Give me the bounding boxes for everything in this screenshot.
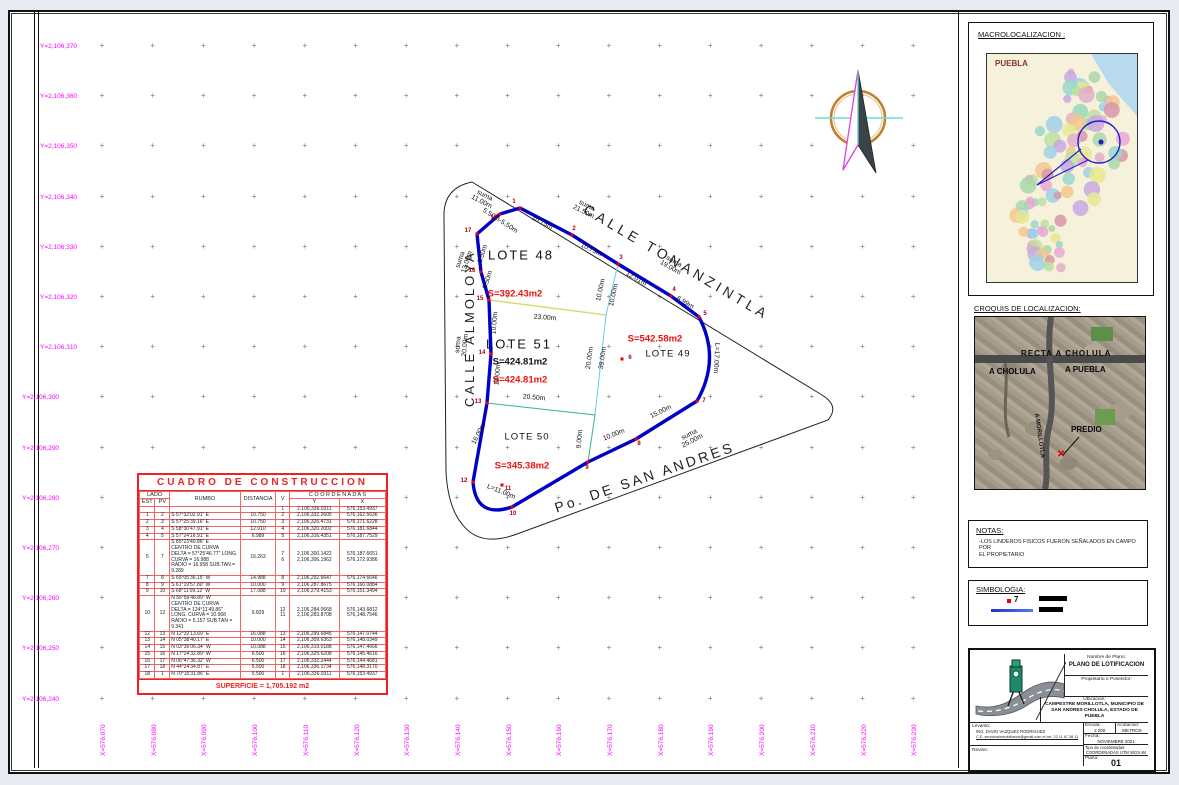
grid-cross: + — [657, 593, 662, 602]
grid-cross: + — [201, 443, 206, 452]
construction-row: 1012N 56°59'48.89" W CENTRO DE CURVA DEL… — [140, 596, 386, 632]
division-line-yellow — [489, 300, 606, 315]
grid-cross: + — [860, 41, 865, 50]
grid-cross: + — [911, 342, 916, 351]
croquis-label-apuebla: A PUEBLA — [1065, 365, 1106, 374]
grid-cross: + — [607, 593, 612, 602]
grid-cross: + — [556, 593, 561, 602]
grid-cross: + — [911, 543, 916, 552]
grid-cross: + — [404, 141, 409, 150]
municipality-blob — [1054, 247, 1065, 258]
x-axis-label: X=576,130 — [404, 724, 411, 756]
grid-cross: + — [911, 242, 916, 251]
grid-cross: + — [911, 643, 916, 652]
grid-cross: + — [302, 392, 307, 401]
grid-cross: + — [353, 342, 358, 351]
grid-cross: + — [860, 593, 865, 602]
grid-cross: + — [404, 242, 409, 251]
municipality-blob — [1054, 215, 1066, 227]
grid-cross: + — [353, 292, 358, 301]
municipality-blob — [1061, 186, 1073, 198]
predio-leader-line — [1063, 437, 1079, 455]
grid-cross: + — [100, 141, 105, 150]
grid-cross: + — [860, 392, 865, 401]
grid-cross: + — [201, 91, 206, 100]
x-axis-label: X=576,080 — [151, 724, 158, 756]
grid-cross: + — [505, 41, 510, 50]
right-panel-rule — [958, 12, 961, 768]
col-pv: PV — [155, 499, 170, 506]
col-coordenadas: C O O R D E N A D A S — [290, 492, 386, 499]
municipality-blob — [1063, 95, 1071, 103]
x-axis-label: X=576,170 — [607, 724, 614, 756]
col-rumbo: RUMBO — [170, 492, 240, 507]
vertex-number-8: 8 — [637, 441, 640, 447]
nombre-label: Nombre de Plano: — [1065, 655, 1148, 660]
grid-cross: + — [353, 242, 358, 251]
grid-cross: + — [455, 41, 460, 50]
vertex-number-7: 7 — [702, 398, 705, 404]
vertex-number-9: 9 — [585, 465, 588, 471]
grid-cross: + — [150, 242, 155, 251]
grid-cross: + — [860, 643, 865, 652]
construction-table-title: CUADRO DE CONSTRUCCION — [139, 475, 386, 491]
legend-boundary-text-redacted — [1039, 607, 1063, 612]
croquis-park-2 — [1095, 409, 1115, 425]
propietario-label: Propietario o Poseedor: — [1065, 677, 1148, 682]
grid-cross: + — [505, 694, 510, 703]
grid-cross: + — [252, 91, 257, 100]
grid-cross: + — [607, 141, 612, 150]
vertex-marker-15 — [488, 299, 491, 302]
grid-cross: + — [759, 593, 764, 602]
construction-row: 57S 85°23'40.86" E CENTRO DE CURVA DELTA… — [140, 540, 386, 576]
grid-cross: + — [809, 41, 814, 50]
vertex-number-11: 11 — [505, 486, 511, 492]
municipality-blob — [1054, 191, 1062, 199]
x-axis-label: X=576,140 — [455, 724, 462, 756]
vertex-marker-11 — [501, 484, 504, 487]
legend-vertex-text-redacted — [1039, 596, 1067, 601]
grid-cross: + — [455, 141, 460, 150]
grid-cross: + — [708, 643, 713, 652]
grid-cross: + — [708, 41, 713, 50]
grid-cross: + — [150, 342, 155, 351]
grid-cross: + — [759, 141, 764, 150]
grid-cross: + — [150, 91, 155, 100]
municipality-blob — [1044, 146, 1057, 159]
lot-label: S=542.58m2 — [628, 334, 683, 345]
vertex-marker-12 — [472, 481, 475, 484]
grid-cross: + — [809, 593, 814, 602]
legend-vertex-marker — [1007, 599, 1011, 603]
x-axis-label: X=576,100 — [252, 724, 259, 756]
grid-cross: + — [404, 694, 409, 703]
vertex-marker-18 — [499, 213, 502, 216]
vertex-marker-6 — [621, 358, 624, 361]
macrolocalizacion-box: MACROLOCALIZACION : PUEBLA — [968, 22, 1154, 296]
logo-station-lens — [1013, 671, 1019, 677]
grid-cross: + — [252, 141, 257, 150]
vertex-marker-17 — [476, 233, 479, 236]
notas-line-1: -LOS LINDEROS FISICOS FUERON SEÑALADOS E… — [979, 539, 1147, 551]
vertex-marker-4 — [670, 295, 673, 298]
vertex-number-5: 5 — [703, 311, 706, 317]
propietario-cell: Propietario o Poseedor: — [1064, 676, 1148, 697]
vertex-number-1: 1 — [512, 199, 515, 205]
y-axis-label: Y=2,106,330 — [40, 244, 77, 251]
grid-cross: + — [404, 41, 409, 50]
grid-cross: + — [708, 91, 713, 100]
grid-cross: + — [556, 141, 561, 150]
grid-cross: + — [353, 192, 358, 201]
municipality-blob — [1046, 116, 1063, 133]
grid-cross: + — [100, 443, 105, 452]
construction-row: 181N 70°15'31.86" E5.50012,106,336.03115… — [140, 672, 386, 679]
municipality-blob — [1060, 159, 1074, 173]
lot-label: LOTE 48 — [488, 248, 554, 263]
notas-line-2: EL PROPIETARIO — [979, 552, 1024, 558]
municipality-blob — [1104, 102, 1120, 118]
x-axis-label: X=576,120 — [354, 724, 361, 756]
croquis-road-vertical — [1045, 317, 1052, 489]
grid-cross: + — [911, 292, 916, 301]
grid-cross: + — [100, 643, 105, 652]
grid-cross: + — [404, 493, 409, 502]
croquis-section: CROQUIS DE LOCALIZACION: RECTA A CHOLULA… — [968, 300, 1152, 492]
plan-name: PLANO DE LOTIFICACION — [1065, 662, 1148, 668]
grid-cross: + — [404, 443, 409, 452]
notas-title: NOTAS: — [976, 526, 1003, 535]
municipality-blob — [1020, 177, 1037, 194]
vertex-marker-14 — [490, 353, 493, 356]
y-axis-label: Y=2,106,350 — [40, 143, 77, 150]
grid-cross: + — [100, 292, 105, 301]
grid-cross: + — [100, 694, 105, 703]
municipality-blob — [1095, 152, 1105, 162]
grid-cross: + — [100, 593, 105, 602]
grid-cross: + — [404, 292, 409, 301]
grid-cross: + — [657, 643, 662, 652]
grid-cross: + — [302, 342, 307, 351]
grid-cross: + — [302, 141, 307, 150]
vertex-marker-2 — [571, 234, 574, 237]
municipality-blob — [1030, 220, 1038, 228]
grid-cross: + — [911, 41, 916, 50]
grid-cross: + — [150, 443, 155, 452]
grid-cross: + — [353, 443, 358, 452]
grid-cross: + — [150, 41, 155, 50]
municipality-blob — [1029, 254, 1046, 271]
grid-cross: + — [759, 41, 764, 50]
municipality-blob — [1078, 87, 1094, 103]
vertex-number-16: 16 — [469, 268, 476, 274]
acotacion-cell: Acotacion: METROS — [1116, 722, 1148, 734]
vertex-marker-1 — [519, 207, 522, 210]
grid-cross: + — [708, 694, 713, 703]
grid-cross: + — [150, 292, 155, 301]
grid-cross: + — [100, 493, 105, 502]
grid-cross: + — [302, 443, 307, 452]
grid-cross: + — [252, 443, 257, 452]
vertex-marker-9 — [587, 461, 590, 464]
municipality-blob — [1042, 169, 1054, 181]
municipality-blob — [1056, 263, 1065, 272]
y-axis-label: Y=2,106,270 — [22, 545, 59, 552]
grid-cross: + — [505, 141, 510, 150]
grid-cross: + — [100, 543, 105, 552]
grid-cross: + — [708, 141, 713, 150]
vertex-marker-7 — [696, 400, 699, 403]
grid-cross: + — [860, 342, 865, 351]
dimension-label: 23.00m — [533, 314, 556, 323]
vertex-number-13: 13 — [475, 399, 482, 405]
y-axis-label: Y=2,106,340 — [40, 194, 77, 201]
municipality-blob — [1073, 200, 1089, 216]
ubicacion-cell: Ubicacion: CAMPESTRE MORILLOTLA, MUNICIP… — [1040, 697, 1148, 722]
sheet: ++++++++++++++++++++++++++++++++++++++++… — [8, 10, 1170, 774]
municipality-blob — [1035, 126, 1045, 136]
acotacion-value: METROS — [1116, 728, 1148, 733]
grid-cross: + — [150, 392, 155, 401]
escala-cell: Escala: 1:200 — [1084, 722, 1116, 734]
grid-cross: + — [302, 41, 307, 50]
municipality-blob — [1048, 225, 1055, 232]
vertex-number-14: 14 — [479, 350, 486, 356]
y-axis-label: Y=2,106,320 — [40, 294, 77, 301]
grid-cross: + — [911, 493, 916, 502]
grid-cross: + — [252, 342, 257, 351]
grid-cross: + — [302, 242, 307, 251]
grid-cross: + — [404, 392, 409, 401]
grid-cross: + — [860, 694, 865, 703]
grid-cross: + — [353, 392, 358, 401]
lot-label: S=345.38m2 — [495, 461, 550, 472]
vertex-marker-10 — [511, 506, 514, 509]
grid-cross: + — [759, 643, 764, 652]
grid-cross: + — [353, 141, 358, 150]
municipality-blob — [1092, 132, 1106, 146]
grid-cross: + — [759, 91, 764, 100]
grid-cross: + — [809, 694, 814, 703]
levanto-cell: Levanto: ING. DAVID VAZQUEZ RODRIGUEZ C.… — [970, 722, 1084, 746]
grid-cross: + — [404, 643, 409, 652]
grid-cross: + — [100, 242, 105, 251]
municipality-blob — [1044, 262, 1054, 272]
grid-cross: + — [657, 141, 662, 150]
lot-label: LOTE 49 — [645, 349, 690, 360]
vertex-number-18: 18 — [491, 215, 498, 221]
grid-cross: + — [860, 292, 865, 301]
grid-cross: + — [353, 694, 358, 703]
fecha-value: NOVIEMBRE 2021 — [1084, 739, 1148, 744]
reviso-cell: Reviso: — [970, 746, 1084, 766]
north-arrow-icon — [805, 60, 915, 185]
x-axis-label: X=576,160 — [556, 724, 563, 756]
x-axis-label: X=576,230 — [911, 724, 918, 756]
dimension-label: suma 20.00m — [454, 333, 470, 357]
x-axis-label: X=576,110 — [303, 725, 310, 756]
grid-cross: + — [657, 694, 662, 703]
grid-cross: + — [100, 392, 105, 401]
tipo-coordenadas-cell: Tipo de coordenadas: COORDENADAS UTM WGS… — [1084, 745, 1148, 756]
y-axis-label: Y=2,106,370 — [40, 43, 77, 50]
lot-label: LOTE 51 — [486, 337, 552, 352]
grid-cross: + — [455, 593, 460, 602]
municipality-blob — [1018, 227, 1028, 237]
grid-cross: + — [556, 91, 561, 100]
grid-cross: + — [505, 643, 510, 652]
x-axis-label: X=576,090 — [201, 724, 208, 756]
municipality-blob — [1087, 192, 1101, 206]
grid-cross: + — [505, 91, 510, 100]
grid-cross: + — [150, 141, 155, 150]
levanto-name: ING. DAVID VAZQUEZ RODRIGUEZ — [976, 729, 1083, 734]
col-v: V — [276, 492, 290, 507]
grid-cross: + — [353, 91, 358, 100]
grid-cross: + — [201, 192, 206, 201]
grid-cross: + — [911, 593, 916, 602]
municipality-blob — [1038, 226, 1048, 236]
col-distancia: DISTANCIA — [240, 492, 276, 507]
grid-cross: + — [252, 41, 257, 50]
grid-cross: + — [860, 192, 865, 201]
croquis-satellite-image: RECTA A CHOLULA A PUEBLA A CHOLULA PREDI… — [974, 316, 1146, 490]
x-axis-label: X=576,180 — [658, 724, 665, 756]
grid-cross: + — [150, 694, 155, 703]
grid-cross: + — [455, 694, 460, 703]
y-axis-label: Y=2,106,360 — [40, 93, 77, 100]
grid-cross: + — [556, 643, 561, 652]
grid-cross: + — [455, 643, 460, 652]
grid-cross: + — [201, 694, 206, 703]
grid-cross: + — [302, 694, 307, 703]
macrolocalizacion-title: MACROLOCALIZACION : — [978, 30, 1065, 39]
title-block: Nombre de Plano: PLANO DE LOTIFICACION P… — [968, 648, 1156, 772]
escala-value: 1:200 — [1084, 728, 1115, 733]
grid-cross: + — [759, 694, 764, 703]
legend-vertex-number: 7 — [1014, 595, 1018, 604]
municipality-blob — [1037, 197, 1046, 206]
vertex-number-15: 15 — [477, 296, 484, 302]
vertex-number-17: 17 — [465, 228, 472, 234]
grid-cross: + — [252, 242, 257, 251]
grid-cross: + — [201, 342, 206, 351]
y-axis-label: Y=2,106,240 — [22, 696, 59, 703]
grid-cross: + — [607, 91, 612, 100]
map-state-title: PUEBLA — [995, 59, 1028, 68]
levanto-contact: C.E. serviciosinmobiliarios@gmail.com el… — [976, 735, 1083, 739]
logo-station-body — [1010, 666, 1022, 692]
grid-cross: + — [860, 493, 865, 502]
grid-cross: + — [708, 593, 713, 602]
grid-cross: + — [556, 41, 561, 50]
grid-cross: + — [860, 443, 865, 452]
construction-table: CUADRO DE CONSTRUCCION LADO RUMBO DISTAN… — [137, 473, 388, 695]
grid-cross: + — [404, 593, 409, 602]
croquis-label-recta: RECTA A CHOLULA — [1021, 349, 1111, 358]
plano-cell: Plano: 01 — [1084, 756, 1148, 768]
grid-cross: + — [252, 392, 257, 401]
vertex-number-2: 2 — [572, 226, 575, 232]
grid-cross: + — [201, 292, 206, 301]
grid-cross: + — [911, 443, 916, 452]
croquis-park-1 — [1091, 327, 1113, 341]
x-axis-label: X=576,200 — [759, 724, 766, 756]
logo-station-top — [1012, 660, 1020, 667]
vertex-number-4: 4 — [672, 287, 675, 293]
croquis-label-predio: PREDIO — [1071, 425, 1102, 434]
x-axis-label: X=576,150 — [506, 724, 513, 756]
grid-cross: + — [252, 694, 257, 703]
construction-table-body: 12,106,336.0311576,153.493712S 57°32'02.… — [140, 506, 386, 678]
grid-cross: + — [404, 192, 409, 201]
grid-cross: + — [455, 91, 460, 100]
grid-cross: + — [404, 543, 409, 552]
municipality-blob — [1096, 91, 1107, 102]
col-est: EST — [140, 499, 155, 506]
grid-cross: + — [911, 392, 916, 401]
grid-cross: + — [860, 543, 865, 552]
grid-cross: + — [607, 694, 612, 703]
grid-cross: + — [100, 342, 105, 351]
tipo-value: COORDENADAS UTM WGS-84 — [1084, 750, 1148, 755]
nombre-cell: Nombre de Plano: PLANO DE LOTIFICACION — [1064, 654, 1148, 676]
grid-cross: + — [302, 192, 307, 201]
y-axis-label: Y=2,106,280 — [22, 495, 59, 502]
x-axis-label: X=576,190 — [708, 724, 715, 756]
grid-cross: + — [607, 41, 612, 50]
grid-cross: + — [353, 41, 358, 50]
grid-cross: + — [505, 593, 510, 602]
y-axis-label: Y=2,106,290 — [22, 445, 59, 452]
locator-dot — [1098, 139, 1103, 144]
grid-cross: + — [911, 192, 916, 201]
vertex-marker-5 — [698, 316, 701, 319]
municipality-blob — [1108, 146, 1122, 160]
croquis-title: CROQUIS DE LOCALIZACION: — [974, 304, 1081, 313]
grid-cross: + — [100, 41, 105, 50]
grid-cross: + — [911, 694, 916, 703]
grid-cross: + — [809, 643, 814, 652]
grid-cross: + — [556, 694, 561, 703]
fecha-cell: Fecha: NOVIEMBRE 2021 — [1084, 734, 1148, 745]
grid-cross: + — [404, 342, 409, 351]
vertex-marker-3 — [617, 263, 620, 266]
reviso-label: Reviso: — [972, 748, 1083, 753]
y-axis-label: Y=2,106,310 — [40, 344, 77, 351]
municipality-blob — [1089, 167, 1106, 184]
grid-cross: + — [657, 91, 662, 100]
y-axis-label: Y=2,106,300 — [22, 394, 59, 401]
grid-cross: + — [860, 242, 865, 251]
municipality-blob — [1015, 210, 1029, 224]
x-axis-label: X=576,220 — [861, 724, 868, 756]
vertex-marker-13 — [486, 402, 489, 405]
grid-cross: + — [150, 192, 155, 201]
grid-cross: + — [302, 91, 307, 100]
vertex-number-3: 3 — [619, 255, 622, 261]
croquis-label-acholula: A CHOLULA — [989, 367, 1036, 376]
x-axis-label: X=576,070 — [100, 724, 107, 756]
superficie-total: SUPERFICIE = 1,705.192 m2 — [139, 679, 386, 693]
ubicacion-value: CAMPESTRE MORILLOTLA, MUNICIPIO DE SAN A… — [1041, 702, 1148, 720]
puebla-state-map: PUEBLA — [986, 53, 1138, 283]
grid-cross: + — [100, 91, 105, 100]
vertex-number-10: 10 — [510, 511, 517, 517]
notas-box: NOTAS: -LOS LINDEROS FISICOS FUERON SEÑA… — [968, 520, 1148, 568]
simbologia-title: SIMBOLOGIA: — [976, 585, 1025, 594]
